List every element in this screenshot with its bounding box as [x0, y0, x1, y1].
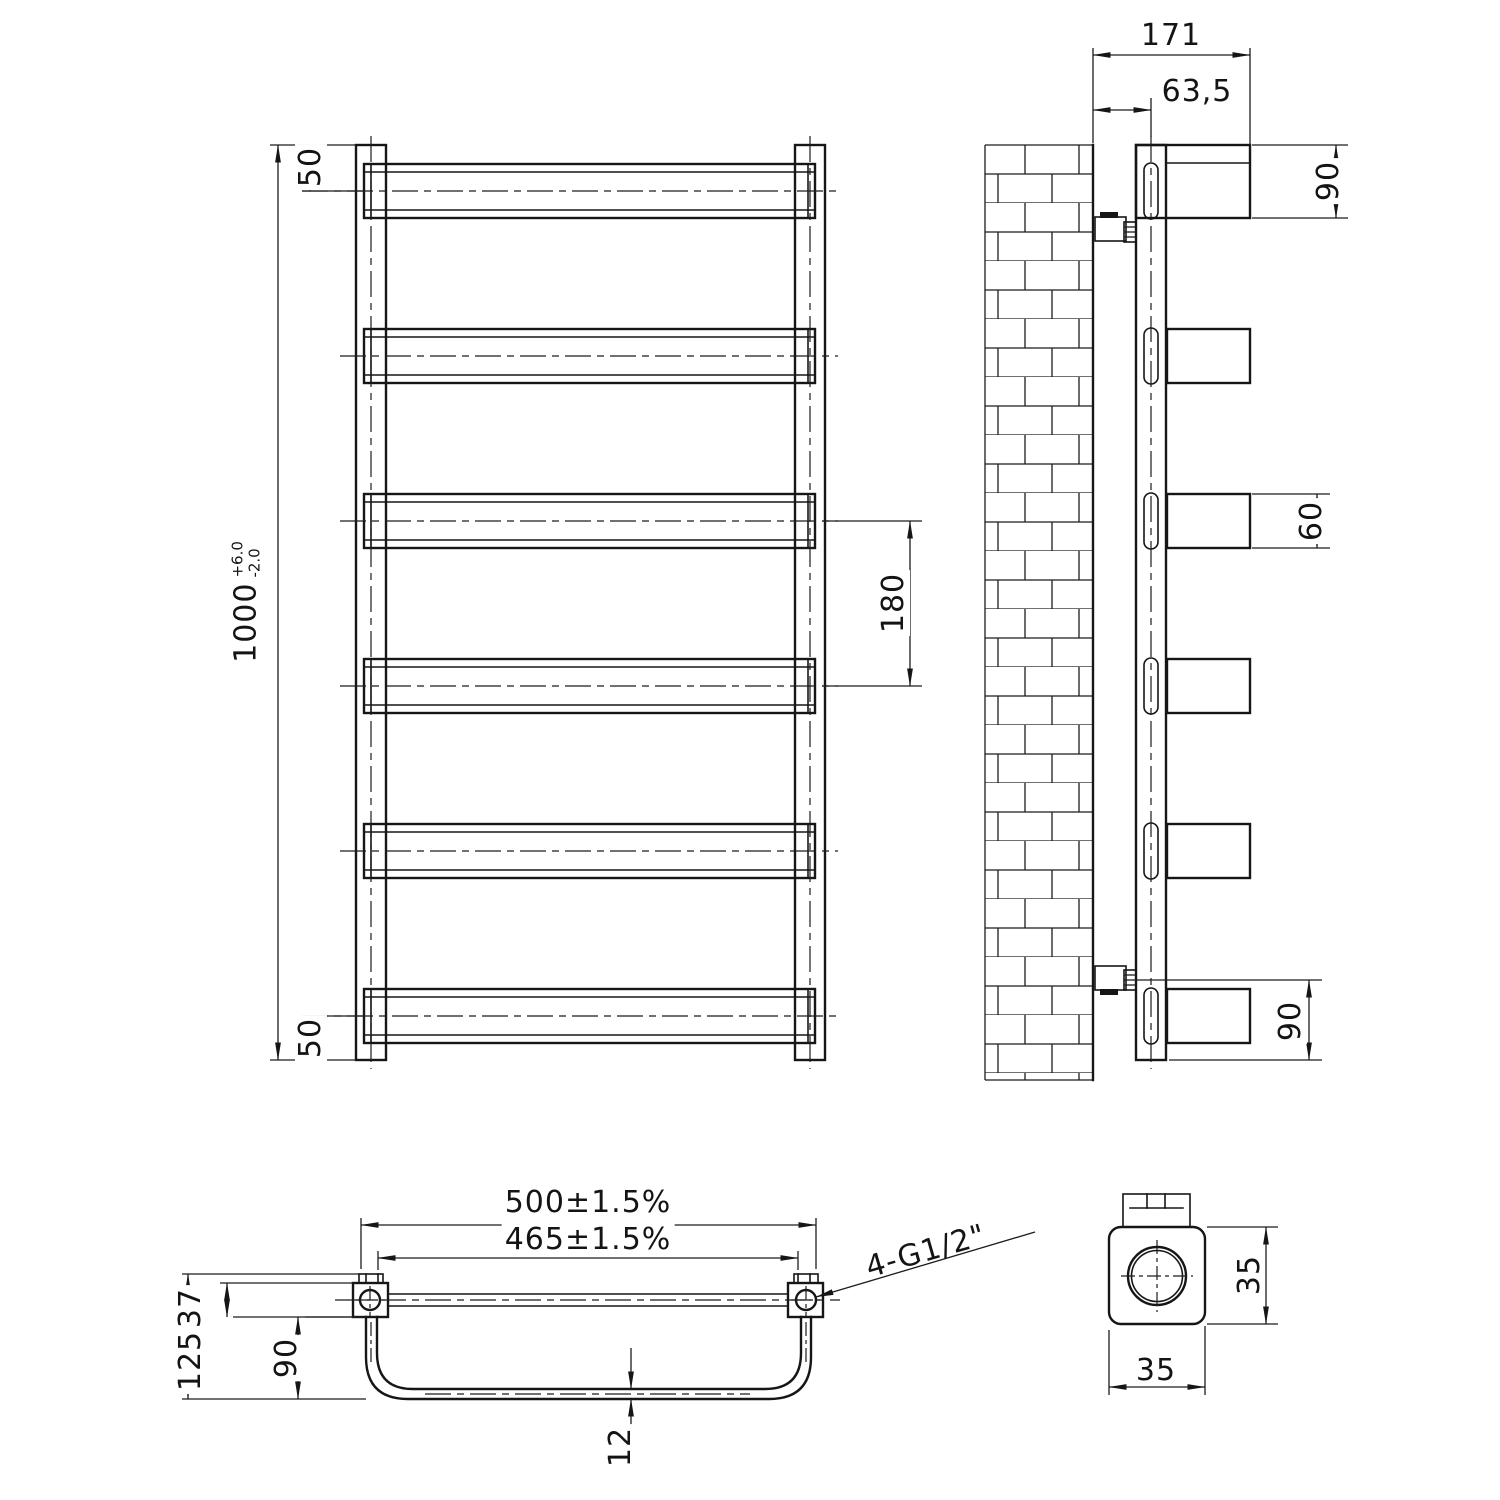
- dim-top-offset: 50: [295, 144, 327, 190]
- dim-bar-pitch: 180: [878, 570, 910, 636]
- bracket-tab: [1123, 1194, 1190, 1227]
- dim-wall-to-axis: 63,5: [1162, 77, 1233, 107]
- front-view: [302, 136, 838, 1069]
- wall-bracket-bottom: [1095, 966, 1136, 995]
- dim-bottom-offset: 50: [295, 1015, 327, 1061]
- dim-profile-width: 35: [1136, 1356, 1176, 1386]
- bottom-bar-side: [1167, 989, 1250, 1043]
- dim-tube-thickness: 12: [605, 1424, 637, 1470]
- profile-section-detail: [1109, 1194, 1205, 1324]
- dim-mid-bar: 60: [1296, 498, 1328, 544]
- valve-connection-left: [353, 1274, 388, 1317]
- dim-wall-offset: 37: [175, 1285, 207, 1331]
- dim-overall-height: 1000 +6.0 -2.0: [230, 541, 263, 663]
- towel-bar-loop-inner: [377, 1317, 801, 1389]
- dim-width-overall: 500±1.5%: [502, 1187, 675, 1219]
- side-view: [985, 136, 1250, 1080]
- dim-profile-height: 35: [1235, 1255, 1265, 1295]
- towel-bars-front: [302, 164, 838, 1043]
- brick-wall-hatch: [985, 145, 1093, 1080]
- dim-bar-depth: 90: [271, 1335, 303, 1381]
- dim-top-bar: 90: [1313, 158, 1345, 204]
- towel-bar-loop-outer: [366, 1317, 811, 1399]
- dim-height-value: 1000: [231, 583, 261, 663]
- wall-bracket-top: [1095, 212, 1136, 242]
- dim-connection-centers: 465±1.5%: [502, 1224, 675, 1256]
- technical-drawing-page: 1000 +6.0 -2.0 50 50 180 171 63,5 90 60 …: [0, 0, 1500, 1500]
- dimension-lines: [188, 55, 1336, 1441]
- drawing-linework: [0, 0, 1500, 1500]
- middle-bars-side: [1167, 329, 1250, 878]
- top-bar-side: [1136, 145, 1250, 218]
- dim-height-tol-minus: -2.0: [246, 541, 263, 577]
- valve-connection-right: [788, 1274, 823, 1317]
- dim-height-tol-plus: +6.0: [230, 541, 247, 577]
- dim-depth-total: 171: [1141, 21, 1201, 51]
- dim-depth-overall: 125: [175, 1328, 207, 1394]
- dim-bottom-bar: 90: [1275, 998, 1307, 1044]
- plan-view: [335, 1274, 840, 1399]
